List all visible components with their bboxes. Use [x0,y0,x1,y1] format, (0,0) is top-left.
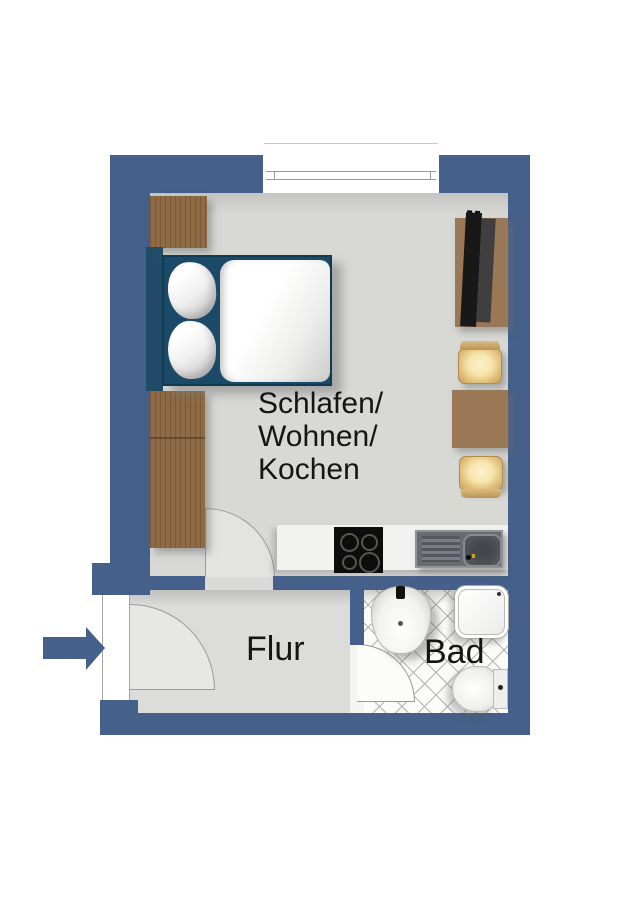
duvet-icon [220,260,330,382]
main-door-threshold [205,576,273,590]
chair-icon [459,456,503,498]
wall-bottom [100,713,530,735]
burner [359,552,380,573]
sink-basin [463,534,502,567]
tv-icon [458,212,500,330]
entrance-door-opening [102,595,130,700]
wall-mid-left [140,576,205,590]
toilet-tank [493,669,508,709]
wardrobe-divider [150,437,205,439]
chair-seat [459,456,503,491]
main-room-label: Schlafen/ Wohnen/ Kochen [258,387,383,486]
bathroom-label: Bad [424,633,485,672]
window-tick [430,171,431,180]
double-bed-icon [162,255,332,386]
sink-drainboard [422,536,460,562]
burner [342,555,357,570]
window-tick [274,171,275,180]
burner [340,533,359,552]
hallway-label: Flur [246,630,305,669]
window-icon [263,155,439,191]
burner [361,534,378,551]
main-room-label-line2: Wohnen/ [258,420,383,453]
cooktop-icon [334,527,383,573]
chair-backrest [461,489,501,498]
pillow-icon [167,261,218,320]
wardrobe-bottom-icon [150,391,205,548]
pillow-icon [167,320,217,380]
main-room-label-line1: Schlafen/ [258,387,383,420]
toilet-flush-button [498,685,503,690]
wall-right [508,155,530,735]
bed-headboard-icon [146,247,163,391]
window-glass-line [266,179,436,180]
window-glass-line [266,171,436,172]
chair-icon [458,341,502,384]
wall-left [110,155,150,563]
shower-icon [454,585,509,639]
wall-hall-bath [350,590,364,645]
chair-backrest [460,341,500,350]
floor-plan: Schlafen/ Wohnen/ Kochen Flur Bad [0,0,640,908]
dining-table-icon [452,390,508,448]
washbasin-faucet [396,586,405,599]
washbasin-drain [398,621,403,626]
chair-seat [458,348,502,384]
wall-entry-bottom-stub [100,700,138,713]
main-room-label-line3: Kochen [258,453,383,486]
entrance-arrow-head-icon [86,627,105,670]
sink-drain-dot [466,555,471,560]
entrance-arrow-icon [43,637,86,659]
sink-faucet [472,554,475,558]
window-sill-line [264,143,438,144]
wardrobe-top-icon [150,196,207,248]
shower-drain [497,592,501,596]
kitchen-sink-icon [415,530,503,568]
